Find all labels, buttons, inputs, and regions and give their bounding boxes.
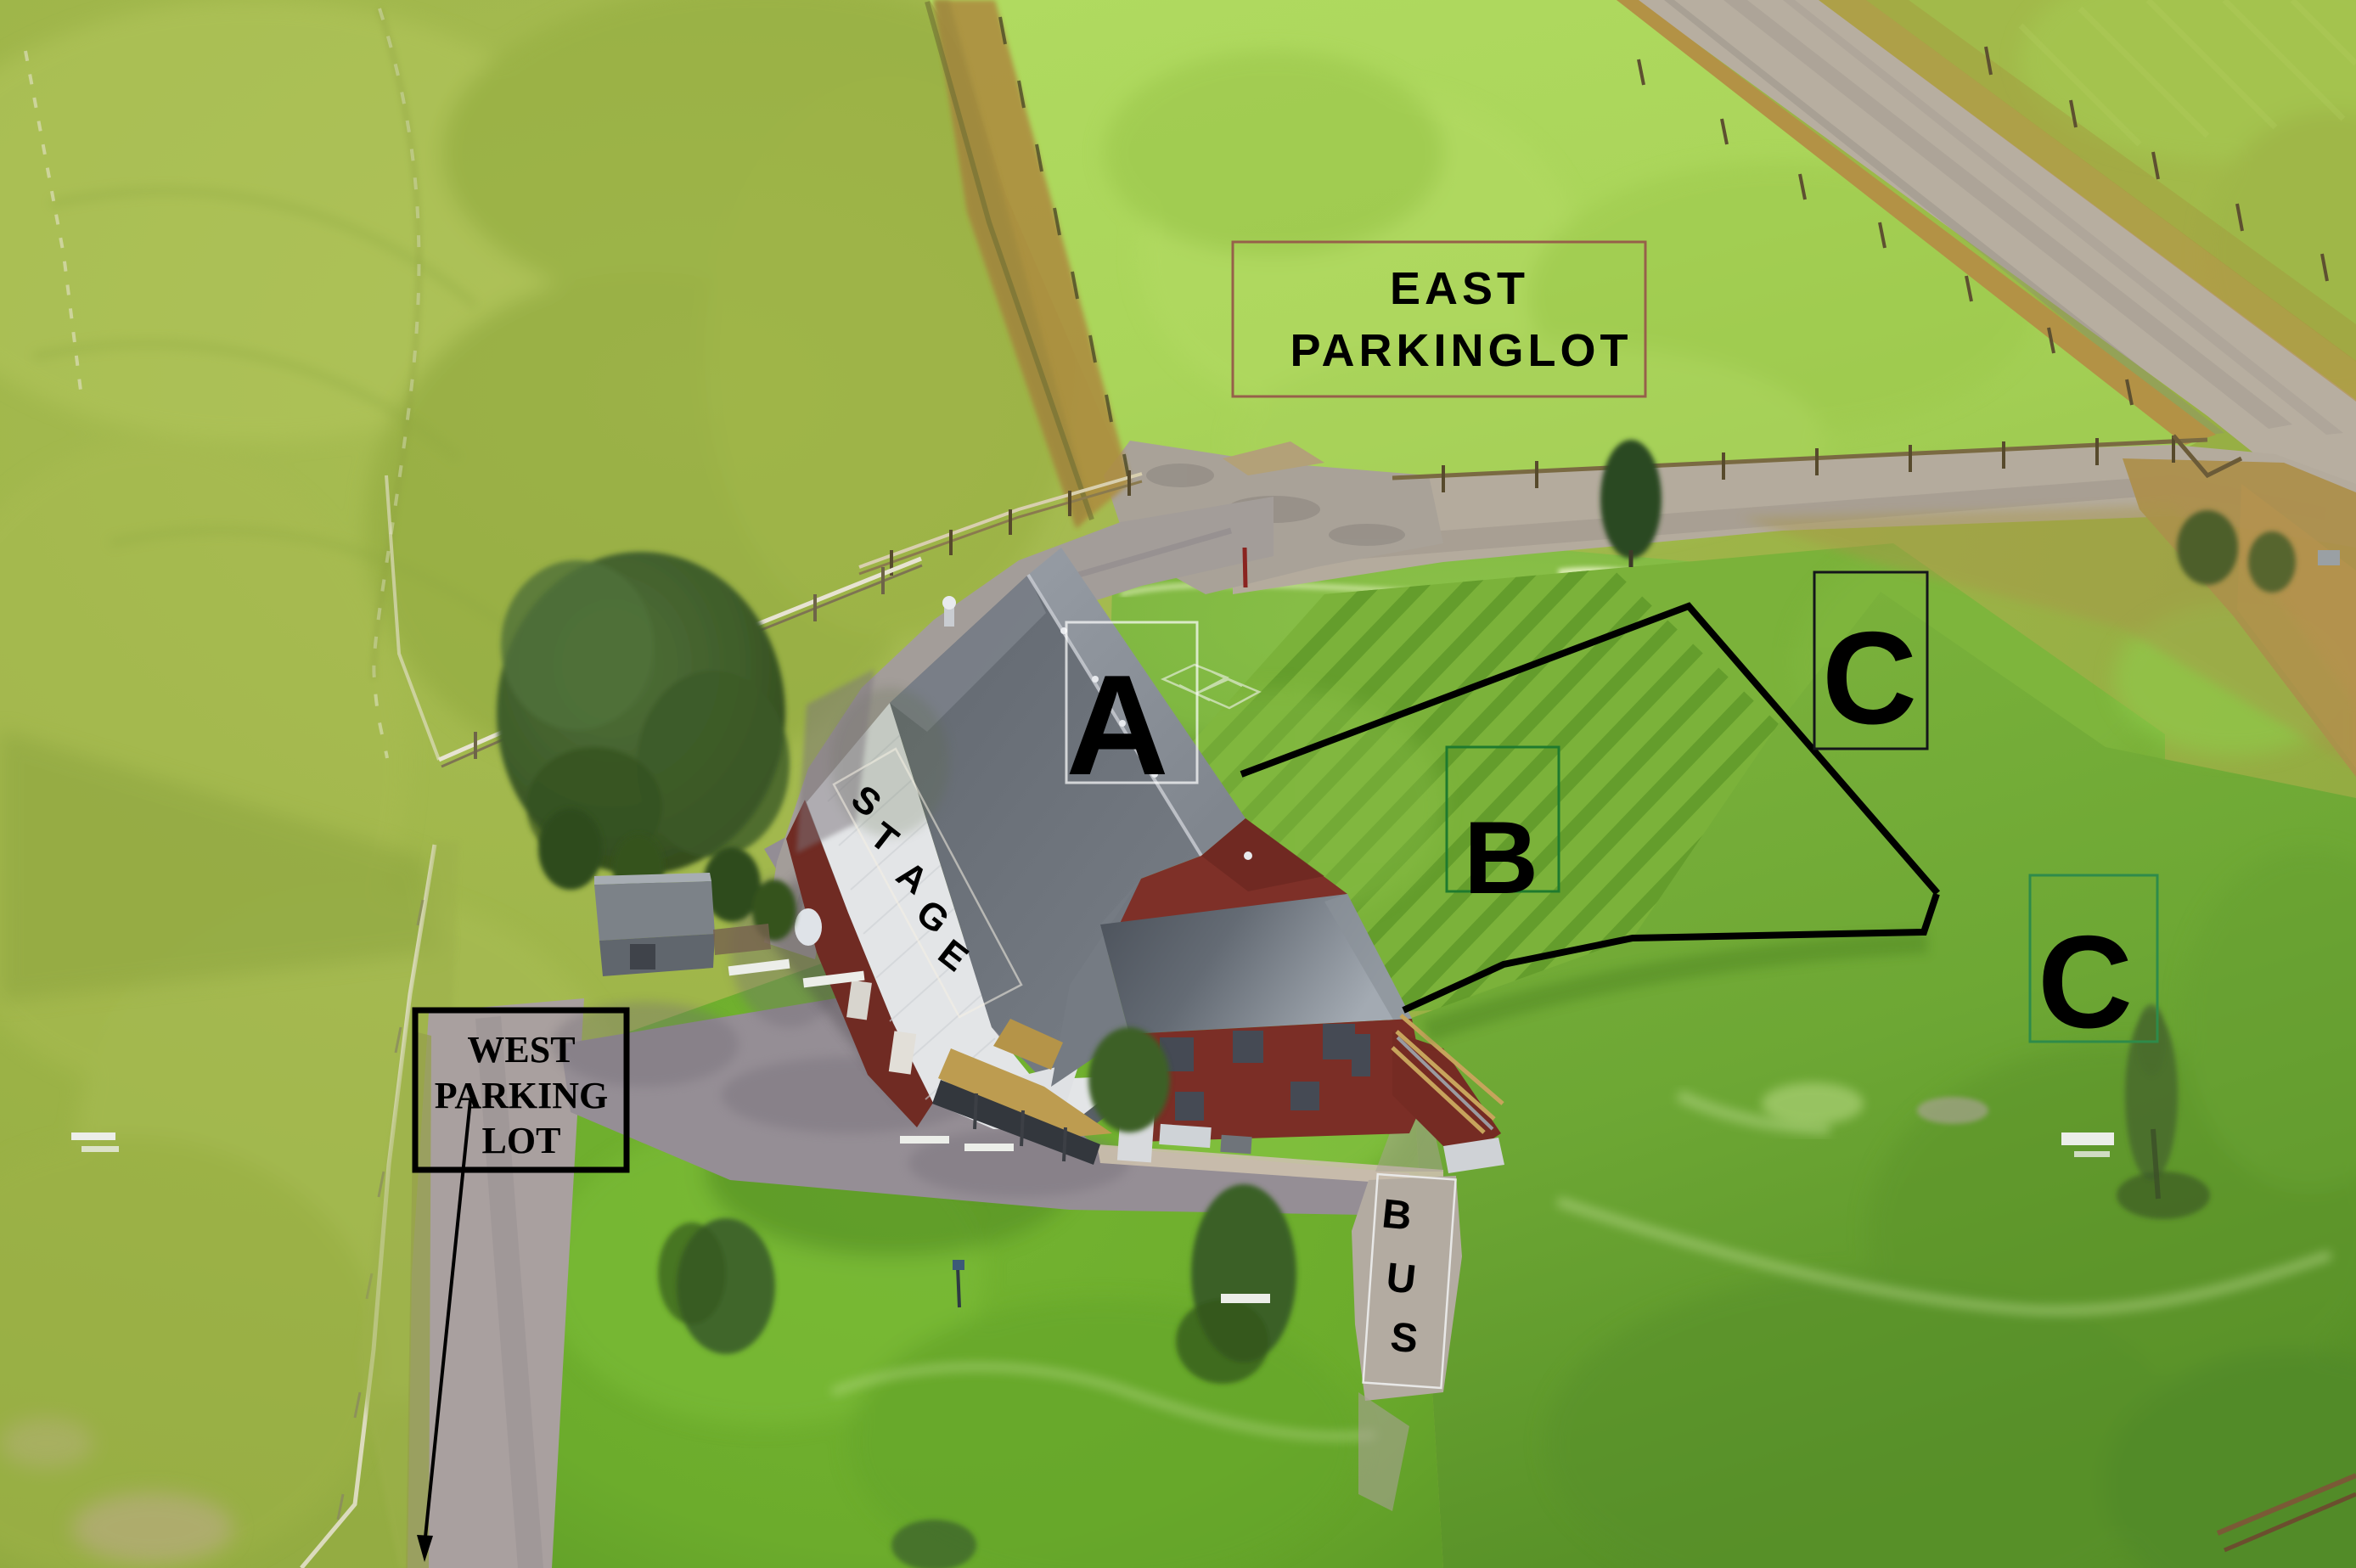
- svg-text:WEST: WEST: [467, 1029, 575, 1071]
- svg-text:A: A: [1066, 645, 1168, 805]
- svg-text:PARKING: PARKING: [435, 1075, 609, 1116]
- svg-text:C: C: [2038, 908, 2133, 1055]
- svg-text:S: S: [1388, 1314, 1420, 1362]
- svg-text:C: C: [1822, 604, 1917, 751]
- svg-text:LOT: LOT: [482, 1120, 561, 1161]
- svg-text:U: U: [1384, 1255, 1418, 1302]
- svg-text:PARKINGLOT: PARKINGLOT: [1290, 325, 1633, 376]
- svg-text:B: B: [1380, 1191, 1414, 1239]
- svg-text:B: B: [1464, 800, 1538, 915]
- svg-text:EAST: EAST: [1390, 263, 1529, 314]
